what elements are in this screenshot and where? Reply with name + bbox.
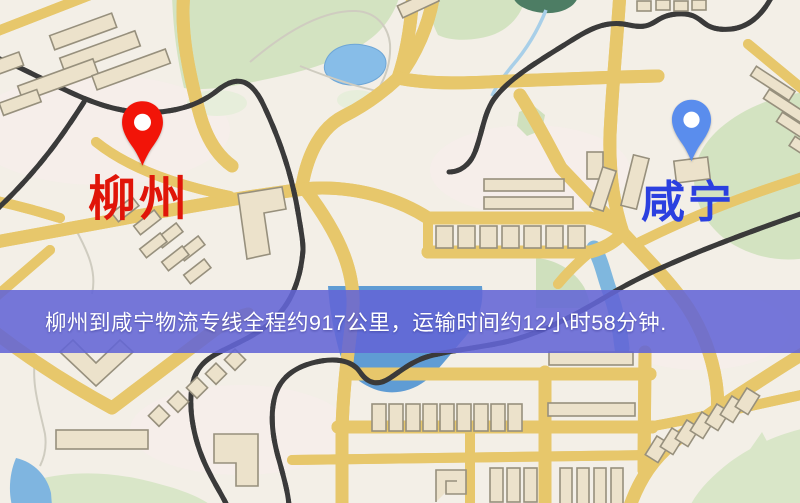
origin-city-label: 柳州 [88,176,190,224]
logistics-route-map: 柳州 咸宁 柳州到咸宁物流专线全程约917公里，运输时间约12小时58分钟. [0,0,800,503]
route-info-banner: 柳州到咸宁物流专线全程约917公里，运输时间约12小时58分钟. [0,290,800,353]
origin-pin-icon[interactable] [120,100,165,168]
origin-pin-shape [122,101,163,165]
destination-pin-shape [672,100,711,162]
destination-pin-hole [683,112,699,128]
destination-city-label: 咸宁 [641,181,735,225]
route-info-text: 柳州到咸宁物流专线全程约917公里，运输时间约12小时58分钟. [45,306,667,337]
destination-pin-icon[interactable] [670,98,713,164]
map-background [0,0,800,503]
origin-pin-hole [134,114,151,131]
